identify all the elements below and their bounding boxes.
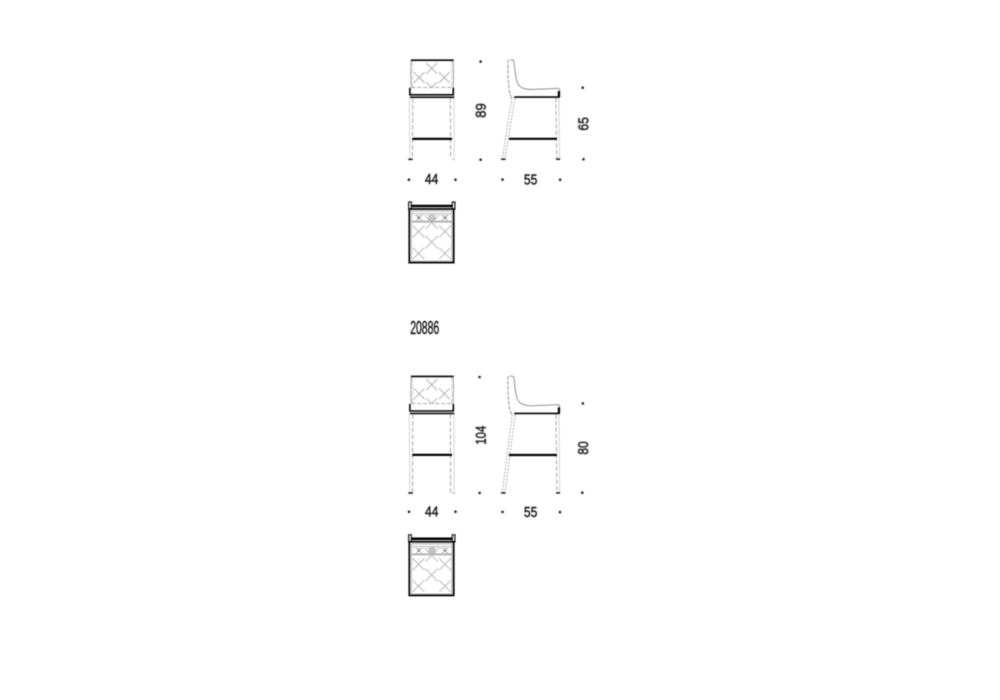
svg-text:80: 80 — [576, 441, 592, 454]
svg-text:55: 55 — [524, 505, 537, 521]
svg-text:55: 55 — [524, 172, 537, 188]
svg-text:44: 44 — [425, 505, 438, 521]
svg-text:89: 89 — [474, 103, 490, 118]
svg-text:104: 104 — [474, 426, 490, 445]
svg-text:20886: 20886 — [410, 318, 439, 338]
svg-text:44: 44 — [425, 172, 438, 188]
svg-text:65: 65 — [577, 117, 593, 130]
